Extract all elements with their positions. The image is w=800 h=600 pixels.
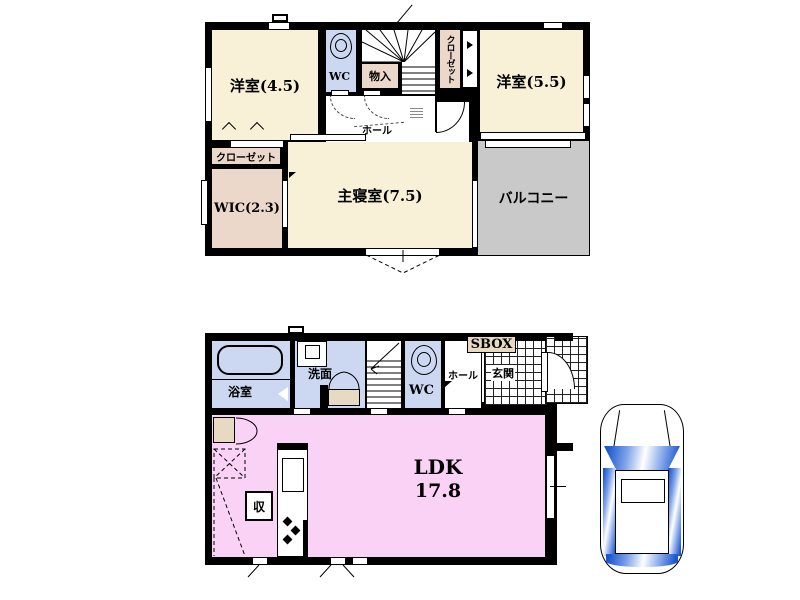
room-label-storage-1f: 収 bbox=[253, 498, 265, 515]
rear-window bbox=[606, 554, 678, 567]
window-left-bedroom45 bbox=[205, 67, 212, 122]
floor-1-plan: 浴室 洗面 bbox=[205, 333, 557, 565]
side-window-right bbox=[668, 468, 681, 556]
window-master-top bbox=[290, 134, 366, 141]
wall-stub-top bbox=[555, 333, 573, 341]
bath-vent-cap bbox=[288, 326, 304, 334]
door-gap-ldk bbox=[448, 408, 466, 415]
casement-window-icon bbox=[250, 122, 264, 136]
kitchen-sink-icon bbox=[282, 458, 304, 492]
room-label-closet-2f: クローゼット bbox=[444, 35, 457, 83]
counter-edge bbox=[303, 520, 307, 558]
door-gap-hall-wall bbox=[331, 90, 349, 96]
cabinet bbox=[213, 417, 235, 443]
room-label-balcony: バルコニー bbox=[499, 188, 569, 208]
wall-protrusion bbox=[557, 443, 573, 451]
door-swing-arc bbox=[436, 102, 465, 133]
room-label-storage-closet: 物入 bbox=[369, 68, 391, 84]
stair-direction-note bbox=[410, 108, 423, 118]
car-icon bbox=[600, 404, 684, 574]
cabinet-door-arcs bbox=[236, 417, 258, 445]
room-label-closet-band: クローゼット bbox=[216, 149, 276, 164]
sunroof bbox=[621, 479, 665, 503]
door-direction-mark bbox=[289, 172, 296, 178]
door-gap-wic-master bbox=[282, 180, 288, 228]
folding-door-arrow-icon bbox=[467, 69, 473, 77]
window-tick bbox=[550, 486, 566, 487]
kitchen-counter bbox=[277, 443, 308, 557]
vent-arrows bbox=[245, 564, 375, 580]
ldk-name: LDK bbox=[392, 455, 484, 479]
window-right-bedroom55 bbox=[583, 103, 590, 127]
front-door-leaf bbox=[541, 352, 548, 392]
staircase-1f bbox=[367, 341, 401, 408]
bathtub-icon bbox=[217, 345, 283, 375]
door-swing-arc bbox=[330, 96, 355, 119]
car-roof bbox=[615, 470, 669, 554]
closet-folding-door bbox=[462, 30, 478, 88]
wall-stub bbox=[320, 385, 328, 408]
burner-icon bbox=[283, 535, 293, 545]
room-closet-band-2f: クローゼット bbox=[212, 148, 280, 164]
room-label-ldk: LDK 17.8 bbox=[392, 455, 484, 503]
vent-duct-line bbox=[396, 4, 412, 23]
burner-icon bbox=[283, 517, 293, 527]
door-gap-ldk bbox=[293, 408, 311, 415]
washing-machine-pad bbox=[328, 389, 360, 406]
room-bathroom: 浴室 bbox=[212, 341, 290, 408]
room-balcony: バルコニー bbox=[477, 140, 590, 256]
door-gap-ldk bbox=[370, 408, 388, 415]
casement-window-icon bbox=[222, 122, 236, 136]
room-label-bedroom-45: 洋室(4.5) bbox=[230, 75, 300, 96]
floor-2-plan: 洋室(4.5) WC bbox=[205, 22, 590, 256]
staircase-2f-straight bbox=[402, 62, 435, 94]
ldk-size: 17.8 bbox=[392, 479, 484, 503]
room-washroom: 洗面 bbox=[295, 341, 365, 408]
room-ldk bbox=[212, 415, 545, 557]
washbasin-icon bbox=[297, 341, 327, 367]
room-label-bedroom-55: 洋室(5.5) bbox=[496, 71, 566, 92]
room-closet-2f: クローゼット bbox=[440, 30, 460, 88]
toilet-icon bbox=[330, 33, 352, 59]
wall-vent bbox=[268, 22, 290, 30]
room-storage-closet-2f: 物入 bbox=[362, 64, 398, 88]
wic-left-window bbox=[201, 180, 208, 225]
room-bedroom-55: 洋室(5.5) bbox=[480, 30, 583, 132]
balcony-railing bbox=[485, 140, 571, 148]
bath-door-notch bbox=[278, 387, 288, 401]
room-wc-2f: WC bbox=[326, 30, 356, 92]
shoe-box-label: SBOX bbox=[471, 337, 513, 352]
room-label-wc-1f: WC bbox=[409, 383, 434, 398]
room-bedroom-45: 洋室(4.5) bbox=[212, 30, 318, 140]
window-master-balcony bbox=[472, 180, 478, 248]
room-label-hall-1f: ホール bbox=[448, 367, 478, 382]
bay-window-mark bbox=[358, 250, 448, 276]
window-ldk-right bbox=[546, 455, 555, 519]
window-bedroom45-bottom bbox=[230, 140, 284, 148]
room-label-bathroom: 浴室 bbox=[228, 383, 252, 400]
floor-plan-scene: 洋室(4.5) WC bbox=[0, 0, 800, 600]
room-wic: WIC(2.3) bbox=[212, 169, 282, 248]
room-label-entrance: 玄関 bbox=[491, 365, 515, 381]
roof-vent-box bbox=[272, 14, 288, 22]
door-swing-arc bbox=[364, 96, 389, 119]
counter-cap bbox=[278, 444, 307, 450]
room-label-wic: WIC(2.3) bbox=[214, 201, 280, 216]
toilet-icon bbox=[411, 345, 437, 375]
room-master-bedroom: 主寝室(7.5) bbox=[288, 142, 472, 248]
burner-icon bbox=[291, 526, 301, 536]
room-label-master-bedroom: 主寝室(7.5) bbox=[337, 185, 422, 206]
bath-divider-line bbox=[212, 379, 290, 380]
window-sash-bedroom55-balcony bbox=[480, 132, 586, 140]
shoe-box: SBOX bbox=[467, 336, 516, 353]
door-direction-mark bbox=[445, 381, 452, 387]
door-gap-hall-wall bbox=[363, 90, 381, 96]
room-storage-1f: 収 bbox=[245, 491, 273, 521]
washer-door-arcs bbox=[328, 371, 360, 389]
folding-door-arrow-icon bbox=[467, 41, 473, 49]
wall-vent bbox=[543, 22, 563, 29]
room-label-hall-2f: ホール bbox=[362, 122, 392, 137]
window-right-bedroom55 bbox=[583, 75, 590, 99]
room-label-wc-2f: WC bbox=[329, 70, 350, 83]
staircase-2f-winder bbox=[362, 30, 435, 62]
hall-2f-extension bbox=[435, 102, 469, 142]
room-wc-1f: WC bbox=[405, 341, 441, 408]
